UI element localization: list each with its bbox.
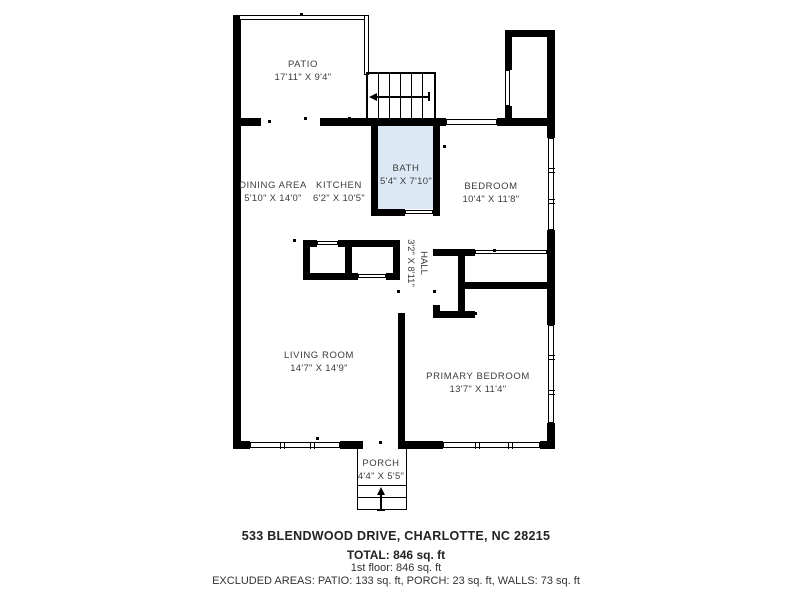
window-mullion: [284, 443, 285, 449]
window-mullion: [549, 199, 555, 200]
total-area: TOTAL: 846 sq. ft: [0, 548, 792, 562]
wall-bottom-a: [233, 441, 250, 449]
room-dimensions: 3'2" X 8'11": [404, 218, 417, 308]
window-mullion: [314, 443, 315, 449]
closet1-door-opening: [317, 241, 338, 245]
room-label-living: LIVING ROOM 14'7" X 14'9": [284, 349, 354, 375]
chimney-wall-left-b: [505, 106, 512, 118]
dimension-tick: [474, 312, 477, 315]
wall-left: [233, 15, 241, 449]
dimension-tick: [234, 357, 237, 360]
stairs-edge-top: [366, 72, 436, 74]
porch-edge-bottom: [357, 485, 407, 486]
window-mullion: [549, 359, 555, 360]
room-dimensions: 17'11" X 9'4": [275, 71, 332, 84]
room-label-porch: PORCH 4'4" X 5'5": [358, 457, 404, 483]
dimension-tick: [238, 96, 241, 99]
window-mullion: [549, 203, 555, 204]
dimension-tick: [493, 249, 496, 252]
closet-divider-vertical: [458, 256, 465, 318]
room-dimensions: 10'4" X 11'8": [463, 193, 520, 206]
dimension-tick: [316, 437, 319, 440]
room-name: BEDROOM: [463, 180, 520, 193]
room-label-patio: PATIO 17'11" X 9'4": [275, 58, 332, 84]
bath-wall-right: [433, 118, 440, 216]
room-label-hall: HALL 3'2" X 8'11": [404, 218, 430, 308]
stairs-edge-right: [434, 72, 436, 120]
room-name: BATH: [380, 162, 432, 175]
porch-arrow-tail: [377, 509, 385, 511]
porch-edge-right: [406, 449, 407, 486]
patio-wall-top: [239, 15, 367, 20]
window-mullion: [310, 443, 311, 449]
room-name: LIVING ROOM: [284, 349, 354, 362]
closet1-wall-top-b: [338, 240, 345, 247]
window-mullion: [479, 443, 480, 449]
room-label-bedroom: BEDROOM 10'4" X 11'8": [463, 180, 520, 206]
bath-door-opening: [405, 210, 433, 214]
bedroom-closet-doors: [475, 250, 547, 254]
room-label-primary: PRIMARY BEDROOM 13'7" X 11'4": [426, 370, 530, 396]
stairs-edge-left: [366, 72, 368, 120]
wall-right-b: [547, 230, 555, 325]
excluded-areas: EXCLUDED AREAS: PATIO: 133 sq. ft, PORCH…: [0, 575, 792, 587]
room-label-bath: BATH 5'4" X 7'10": [380, 162, 432, 188]
dimension-tick: [300, 13, 303, 16]
room-dimensions: 13'7" X 11'4": [426, 383, 530, 396]
room-name: KITCHEN: [313, 179, 365, 192]
wall-bottom-b: [340, 441, 363, 449]
stairs-arrow-line: [376, 96, 428, 98]
bedroom-wall-bottom: [465, 282, 547, 289]
dimension-tick: [304, 117, 307, 120]
closets-wall-bottom: [303, 273, 358, 280]
dimension-tick: [433, 290, 436, 293]
wall-right-a: [547, 30, 555, 138]
window-primary-bottom: [443, 442, 540, 448]
room-dimensions: 14'7" X 14'9": [284, 362, 354, 375]
room-dimensions: 4'4" X 5'5": [358, 470, 404, 483]
stairs-arrow-tail: [428, 92, 430, 101]
window-mullion: [508, 443, 509, 449]
dimension-tick: [234, 229, 237, 232]
bath-wall-bottom: [371, 209, 405, 216]
room-name: HALL: [417, 218, 430, 308]
closet1-wall-top: [303, 240, 317, 247]
window-mullion: [512, 443, 513, 449]
bedroom-closet-wall: [433, 249, 475, 256]
window-primary-right: [548, 325, 554, 423]
porch-arrow-line: [380, 493, 382, 510]
room-name: PATIO: [275, 58, 332, 71]
porch-step-line: [357, 497, 407, 498]
window-mullion: [549, 390, 555, 391]
property-address: 533 BLENDWOOD DRIVE, CHARLOTTE, NC 28215: [0, 529, 792, 543]
dimension-tick: [379, 441, 382, 444]
primary-closet-wall: [433, 311, 475, 318]
chimney-opening: [505, 70, 510, 106]
dimension-tick: [443, 145, 446, 148]
window-mullion: [280, 443, 281, 449]
chimney-wall-left-a: [505, 30, 512, 70]
room-dimensions: 5'4" X 7'10": [380, 175, 432, 188]
first-floor-area: 1st floor: 846 sq. ft: [0, 562, 792, 574]
closets-wall-bottom-b: [386, 273, 400, 280]
dimension-tick: [268, 120, 271, 123]
patio-wall-right: [364, 15, 369, 75]
window-mullion: [475, 443, 476, 449]
dimension-tick: [397, 290, 400, 293]
livingroom-wall-east: [398, 313, 405, 449]
room-label-dining: DINING AREA 5'10" X 14'0": [239, 179, 307, 205]
wall-top-a: [233, 118, 261, 126]
room-dimensions: 6'2" X 10'5": [313, 192, 365, 205]
window-bedroom-right: [548, 138, 554, 230]
window-mullion: [549, 394, 555, 395]
window-mullion: [549, 355, 555, 356]
dimension-tick: [348, 117, 351, 120]
bath-wall-left: [371, 118, 378, 216]
room-label-kitchen: KITCHEN 6'2" X 10'5": [313, 179, 365, 205]
closet2-door-opening: [358, 274, 386, 278]
window-top: [446, 119, 497, 125]
dimension-tick: [293, 239, 296, 242]
window-mullion: [549, 168, 555, 169]
room-name: PORCH: [358, 457, 404, 470]
wall-top-b: [320, 118, 446, 126]
floor-plan: PATIO 17'11" X 9'4" DINING AREA 5'10" X …: [0, 0, 792, 611]
window-mullion: [549, 172, 555, 173]
room-name: PRIMARY BEDROOM: [426, 370, 530, 383]
room-name: DINING AREA: [239, 179, 307, 192]
window-living-bottom: [250, 442, 340, 448]
wall-bottom-d: [540, 441, 555, 449]
room-dimensions: 5'10" X 14'0": [239, 192, 307, 205]
